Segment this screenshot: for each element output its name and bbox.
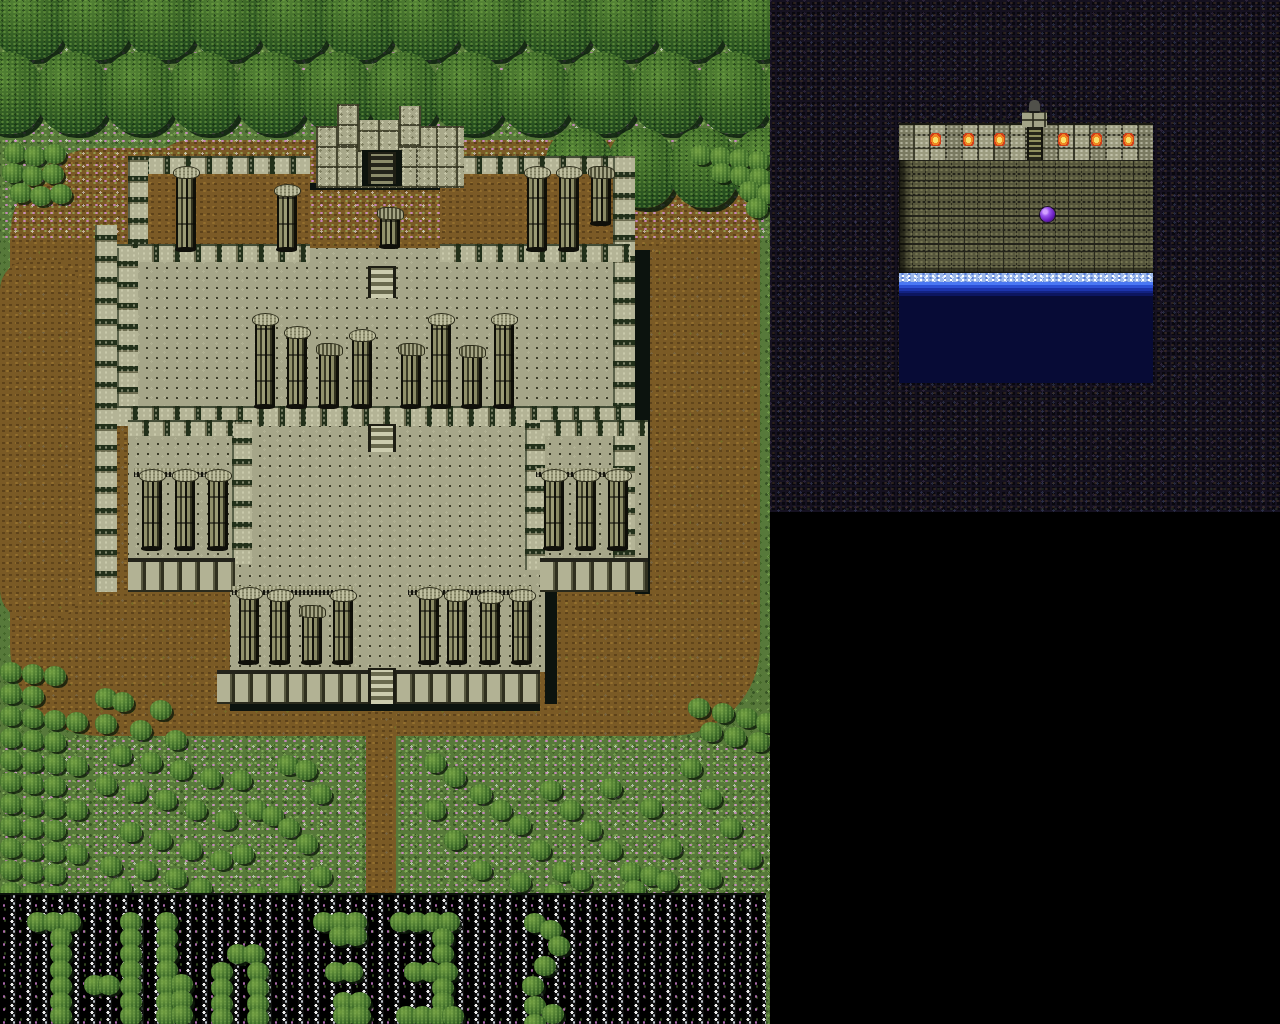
tree — [102, 52, 176, 134]
bush — [720, 818, 742, 838]
bush — [295, 760, 317, 780]
ruined-column — [270, 598, 290, 662]
castle-wall-edge — [525, 420, 545, 570]
bush — [600, 840, 622, 860]
ruined-column — [255, 322, 275, 406]
bush — [30, 186, 52, 206]
bush — [310, 784, 332, 804]
ruined-column — [512, 598, 532, 662]
flowerbed-bush — [247, 1008, 269, 1024]
bush — [680, 758, 702, 778]
castle-stairs — [368, 668, 396, 704]
flowerbed-bush — [341, 962, 363, 982]
bush — [424, 800, 446, 820]
bush — [656, 871, 678, 891]
bush — [44, 754, 66, 774]
bush — [740, 848, 762, 868]
flowerbed-bush — [243, 944, 265, 964]
castle-stairs — [368, 266, 396, 298]
ruined-column — [208, 478, 228, 548]
torch-flame-icon — [1123, 133, 1134, 146]
ruined-column — [419, 596, 439, 662]
bush — [155, 790, 177, 810]
bush — [470, 784, 492, 804]
bush — [509, 815, 531, 835]
flowerbed-bush — [442, 1006, 464, 1024]
ruined-column — [287, 335, 307, 406]
empty-screen-area — [770, 512, 1280, 1024]
bush — [180, 840, 202, 860]
bush — [44, 710, 66, 730]
tree — [454, 0, 528, 60]
bush — [135, 860, 157, 880]
bush — [700, 868, 722, 888]
bush — [444, 767, 466, 787]
bush — [0, 860, 22, 880]
torch-flame-icon — [1058, 133, 1069, 146]
bush — [278, 818, 300, 838]
bush — [165, 868, 187, 888]
bush — [130, 720, 152, 740]
ruined-column — [401, 352, 421, 406]
bush — [42, 164, 64, 184]
bush — [44, 732, 66, 752]
tree — [432, 52, 506, 134]
tree — [520, 0, 594, 60]
torch-flame-icon — [1091, 133, 1102, 146]
ruined-column — [142, 478, 162, 548]
bush — [66, 756, 88, 776]
bush — [95, 775, 117, 795]
castle-wall-edge — [95, 225, 117, 592]
bush — [0, 662, 22, 682]
tree — [388, 0, 462, 60]
ruined-column — [576, 478, 596, 548]
dirt-field — [0, 260, 80, 620]
tree — [630, 52, 704, 134]
bush — [185, 800, 207, 820]
bush — [22, 686, 44, 706]
bush — [112, 692, 134, 712]
bush — [0, 838, 22, 858]
bush — [688, 698, 710, 718]
flowerbed-bush — [349, 1006, 371, 1024]
tree — [0, 0, 66, 60]
tree — [652, 0, 726, 60]
tree — [718, 0, 770, 60]
bush — [170, 760, 192, 780]
deep-water — [899, 296, 1153, 383]
shrine-room-view[interactable] — [899, 100, 1153, 383]
flowerbed-bush — [171, 1005, 193, 1024]
bush — [24, 146, 46, 166]
bush — [100, 856, 122, 876]
chimney-cap — [1029, 100, 1040, 113]
bush — [470, 860, 492, 880]
bush — [22, 840, 44, 860]
bush — [200, 768, 222, 788]
ruined-column — [431, 322, 451, 406]
bush — [660, 838, 682, 858]
purple-orb[interactable] — [1040, 207, 1055, 222]
tree — [586, 0, 660, 60]
castle-stairs — [368, 152, 396, 184]
bush — [2, 163, 24, 183]
tree — [190, 0, 264, 60]
torch-flame-icon — [930, 133, 941, 146]
flowerbed-bush — [120, 1006, 142, 1024]
ruined-column — [380, 216, 400, 246]
bush — [44, 144, 66, 164]
ruined-column — [352, 338, 372, 406]
bush — [700, 722, 722, 742]
bush — [529, 840, 551, 860]
overworld-map-view[interactable] — [0, 0, 770, 1024]
water-surface — [899, 282, 1153, 296]
flowerbed-bush — [534, 956, 556, 976]
bush — [140, 752, 162, 772]
bush — [0, 772, 22, 792]
bush — [232, 844, 254, 864]
bush — [424, 753, 446, 773]
castle-wall — [399, 106, 421, 146]
flowerbed-bush — [345, 926, 367, 946]
bush — [310, 866, 332, 886]
chimney-block — [1022, 112, 1047, 127]
tree — [256, 0, 330, 60]
bush — [540, 780, 562, 800]
bush — [0, 816, 22, 836]
ruined-column — [333, 598, 353, 662]
flowerbed-bush — [50, 1006, 72, 1024]
bush — [150, 830, 172, 850]
tree — [322, 0, 396, 60]
bush — [95, 714, 117, 734]
castle-stairs — [368, 424, 396, 452]
castle-crenellation — [128, 156, 310, 174]
ruined-column — [277, 193, 297, 249]
bush — [44, 820, 66, 840]
bush — [44, 776, 66, 796]
bush — [44, 666, 66, 686]
bush — [0, 750, 22, 770]
flowerbed-strip — [0, 893, 766, 1024]
tree — [696, 52, 770, 134]
flowerbed-bush — [522, 976, 544, 996]
ruined-column — [239, 596, 259, 662]
bush — [44, 842, 66, 862]
ruined-column — [494, 322, 514, 406]
ruined-column — [302, 614, 322, 662]
bush — [509, 872, 531, 892]
bush — [22, 818, 44, 838]
bush — [746, 198, 768, 218]
tree — [234, 52, 308, 134]
water-foam — [899, 273, 1153, 282]
ruined-column — [608, 478, 628, 548]
bush — [210, 850, 232, 870]
wall-shadow — [545, 592, 557, 704]
bush — [0, 706, 22, 726]
bush — [724, 727, 746, 747]
bush — [620, 862, 642, 882]
bush — [44, 798, 66, 818]
tree — [762, 52, 770, 134]
wall-shadow — [230, 704, 540, 711]
ruined-column — [591, 175, 611, 223]
bush — [22, 708, 44, 728]
bush — [22, 730, 44, 750]
bush — [50, 184, 72, 204]
castle-wall-face — [128, 558, 235, 592]
flowerbed-bush — [432, 944, 454, 964]
castle-crenellation — [540, 420, 648, 436]
bush — [10, 183, 32, 203]
bush — [736, 708, 758, 728]
bush — [165, 730, 187, 750]
flowerbed-bush — [98, 975, 120, 995]
tree — [58, 0, 132, 60]
bush — [44, 864, 66, 884]
bush — [580, 820, 602, 840]
brick-wall — [899, 160, 1153, 273]
bush — [22, 774, 44, 794]
ruined-column — [527, 175, 547, 249]
tree — [564, 52, 638, 134]
bush — [748, 732, 770, 752]
bush — [712, 703, 734, 723]
bush — [66, 800, 88, 820]
tree — [498, 52, 572, 134]
dirt-field — [366, 704, 396, 894]
flowerbed-bush — [211, 1008, 233, 1024]
bush — [600, 778, 622, 798]
bush — [0, 684, 22, 704]
torch-flame-icon — [994, 133, 1005, 146]
bush — [4, 143, 26, 163]
bush — [66, 844, 88, 864]
ruined-column — [319, 352, 339, 406]
castle-crenellation — [128, 420, 235, 436]
castle-wall-face — [540, 558, 648, 592]
bush — [150, 700, 172, 720]
bush — [215, 810, 237, 830]
bush — [230, 770, 252, 790]
ruined-column — [175, 478, 195, 548]
ruined-column — [176, 175, 196, 249]
bush — [125, 782, 147, 802]
bush — [0, 728, 22, 748]
bush — [570, 870, 592, 890]
ruined-column — [544, 478, 564, 548]
bush — [296, 834, 318, 854]
tree — [168, 52, 242, 134]
bush — [490, 800, 512, 820]
ruined-column — [559, 175, 579, 249]
castle-wall-edge — [117, 248, 138, 408]
bush — [22, 796, 44, 816]
bush — [22, 752, 44, 772]
ruined-column — [462, 354, 482, 406]
bush — [756, 713, 770, 733]
bush — [444, 830, 466, 850]
ruined-column — [480, 600, 500, 662]
tree — [124, 0, 198, 60]
bush — [66, 712, 88, 732]
bush — [110, 745, 132, 765]
bush — [560, 800, 582, 820]
castle-wall-edge — [232, 420, 252, 564]
ruined-column — [447, 598, 467, 662]
bush — [640, 798, 662, 818]
bush — [700, 788, 722, 808]
castle-wall — [337, 104, 359, 146]
tree — [36, 52, 110, 134]
flowerbed-bush — [548, 936, 570, 956]
bush — [22, 664, 44, 684]
bush — [120, 822, 142, 842]
bush — [22, 862, 44, 882]
game-screenshot — [0, 0, 1280, 1024]
torch-flame-icon — [963, 133, 974, 146]
bush — [0, 794, 22, 814]
bush — [690, 145, 712, 165]
castle-wall — [358, 120, 399, 152]
